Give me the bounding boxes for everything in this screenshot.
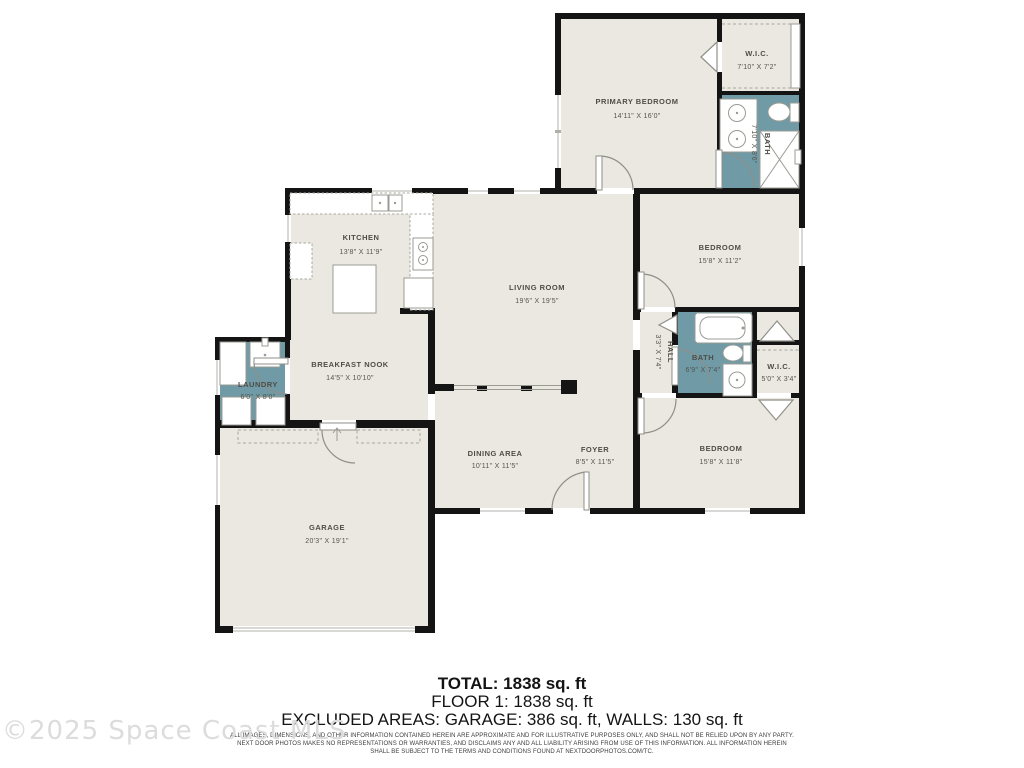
dims-wic1: 7'10" X 7'2": [737, 64, 776, 71]
bathtub-icon: [695, 313, 752, 343]
label-laundry: LAUNDRY: [238, 380, 278, 389]
dims-primary-bedroom: 14'11" X 16'0": [613, 113, 660, 120]
dims-garage: 20'3" X 19'1": [305, 538, 349, 545]
kitchen-sink-icon: [372, 195, 402, 211]
label-bath2: BATH: [692, 353, 714, 362]
label-bedroom2: BEDROOM: [700, 444, 743, 453]
floor-area: FLOOR 1: 1838 sq. ft: [0, 693, 1024, 711]
kitchen-island: [333, 265, 376, 313]
dims-breakfast-nook: 14'5" X 10'10": [326, 375, 374, 382]
label-dining-area: DINING AREA: [468, 449, 523, 458]
label-bath1: BATH: [763, 133, 772, 155]
label-kitchen: KITCHEN: [343, 233, 380, 242]
label-bedroom1: BEDROOM: [699, 243, 742, 252]
dims-bedroom2: 15'8" X 11'8": [700, 459, 743, 466]
label-foyer: FOYER: [581, 445, 609, 454]
floor-plan: PRIMARY BEDROOM 14'11" X 16'0" W.I.C. 7'…: [0, 0, 1024, 768]
toilet-icon: [768, 103, 799, 122]
label-wic2: W.I.C.: [767, 362, 790, 371]
dims-hall: 3'3" X 7'4": [654, 334, 661, 369]
dims-foyer: 8'5" X 11'5": [576, 459, 615, 466]
toilet-icon: [723, 345, 751, 362]
fridge-icon: [404, 278, 433, 308]
dims-dining-area: 10'11" X 11'5": [472, 463, 519, 470]
dims-bath1: 7'10" X 8'6": [750, 124, 757, 163]
label-living-room: LIVING ROOM: [509, 283, 565, 292]
floor-plan-page: PRIMARY BEDROOM 14'11" X 16'0" W.I.C. 7'…: [0, 0, 1024, 768]
stove-icon: [413, 238, 433, 270]
label-hall: HALL: [666, 341, 675, 363]
dims-living-room: 19'6" X 19'5": [515, 298, 559, 305]
garage-door: [233, 626, 415, 633]
washer-icon: [222, 397, 251, 425]
label-primary-bedroom: PRIMARY BEDROOM: [596, 97, 679, 106]
dims-wic2: 5'0" X 3'4": [761, 376, 796, 383]
dims-laundry: 6'0" X 8'0": [240, 394, 275, 401]
disclaimer-line-3: SHALL BE SUBJECT TO THE TERMS AND CONDIT…: [0, 748, 1024, 756]
dryer-icon: [256, 397, 285, 425]
dims-bath2: 6'9" X 7'4": [685, 367, 720, 374]
total-area: TOTAL: 1838 sq. ft: [0, 674, 1024, 693]
dims-bedroom1: 15'8" X 11'2": [699, 258, 742, 265]
laundry-counter: [220, 342, 246, 385]
label-breakfast-nook: BREAKFAST NOOK: [311, 360, 389, 369]
kitchen-counter-left: [290, 243, 312, 279]
dims-kitchen: 13'8" X 11'9": [340, 249, 383, 256]
front-door: [584, 472, 589, 510]
kitchen-counter-top: [290, 193, 433, 214]
watermark: ©2025 Space Coast MLS: [2, 716, 346, 746]
label-wic1: W.I.C.: [745, 49, 768, 58]
label-garage: GARAGE: [309, 523, 345, 532]
